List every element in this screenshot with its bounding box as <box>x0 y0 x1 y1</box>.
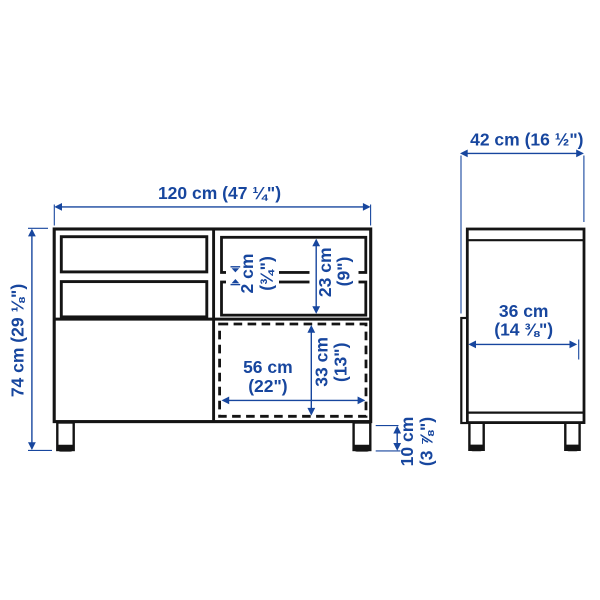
svg-text:2 cm: 2 cm <box>237 254 257 294</box>
svg-text:74 cm (29 ⅛"): 74 cm (29 ⅛") <box>8 284 28 397</box>
svg-text:23 cm: 23 cm <box>315 247 335 297</box>
svg-text:(9"): (9") <box>334 257 354 287</box>
svg-text:(3 ⅞"): (3 ⅞") <box>417 417 437 466</box>
svg-text:33 cm: 33 cm <box>312 337 332 387</box>
svg-text:(14 ⅜"): (14 ⅜") <box>494 319 553 339</box>
svg-text:56 cm: 56 cm <box>243 357 293 377</box>
svg-text:120 cm (47 ¼"): 120 cm (47 ¼") <box>158 183 281 203</box>
svg-text:42 cm (16 ½"): 42 cm (16 ½") <box>470 130 583 150</box>
svg-text:(22"): (22") <box>248 376 287 396</box>
svg-text:10 cm: 10 cm <box>397 417 417 467</box>
svg-text:(13"): (13") <box>331 343 351 382</box>
svg-text:(¾"): (¾") <box>257 256 277 291</box>
svg-text:36 cm: 36 cm <box>499 301 549 321</box>
